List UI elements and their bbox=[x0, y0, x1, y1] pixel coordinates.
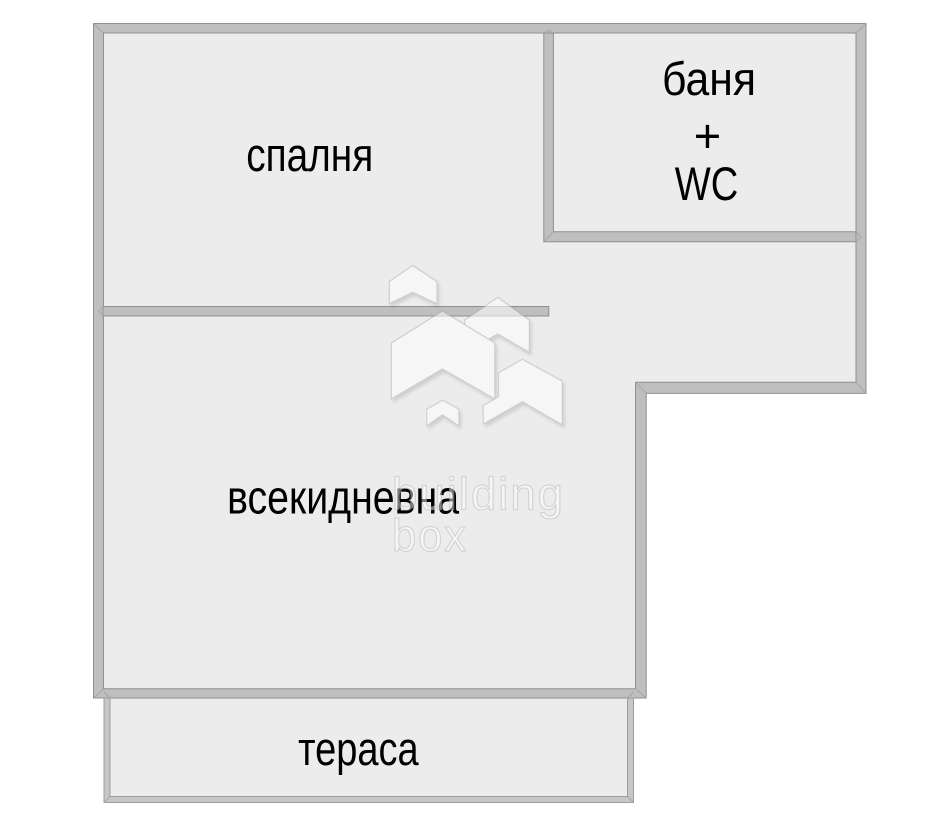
svg-text:box: box bbox=[392, 510, 468, 561]
svg-text:баня: баня bbox=[662, 52, 756, 105]
svg-text:+: + bbox=[694, 109, 721, 162]
svg-text:спалня: спалня bbox=[246, 128, 373, 181]
svg-text:WC: WC bbox=[675, 157, 739, 210]
svg-text:тераса: тераса bbox=[298, 722, 419, 775]
